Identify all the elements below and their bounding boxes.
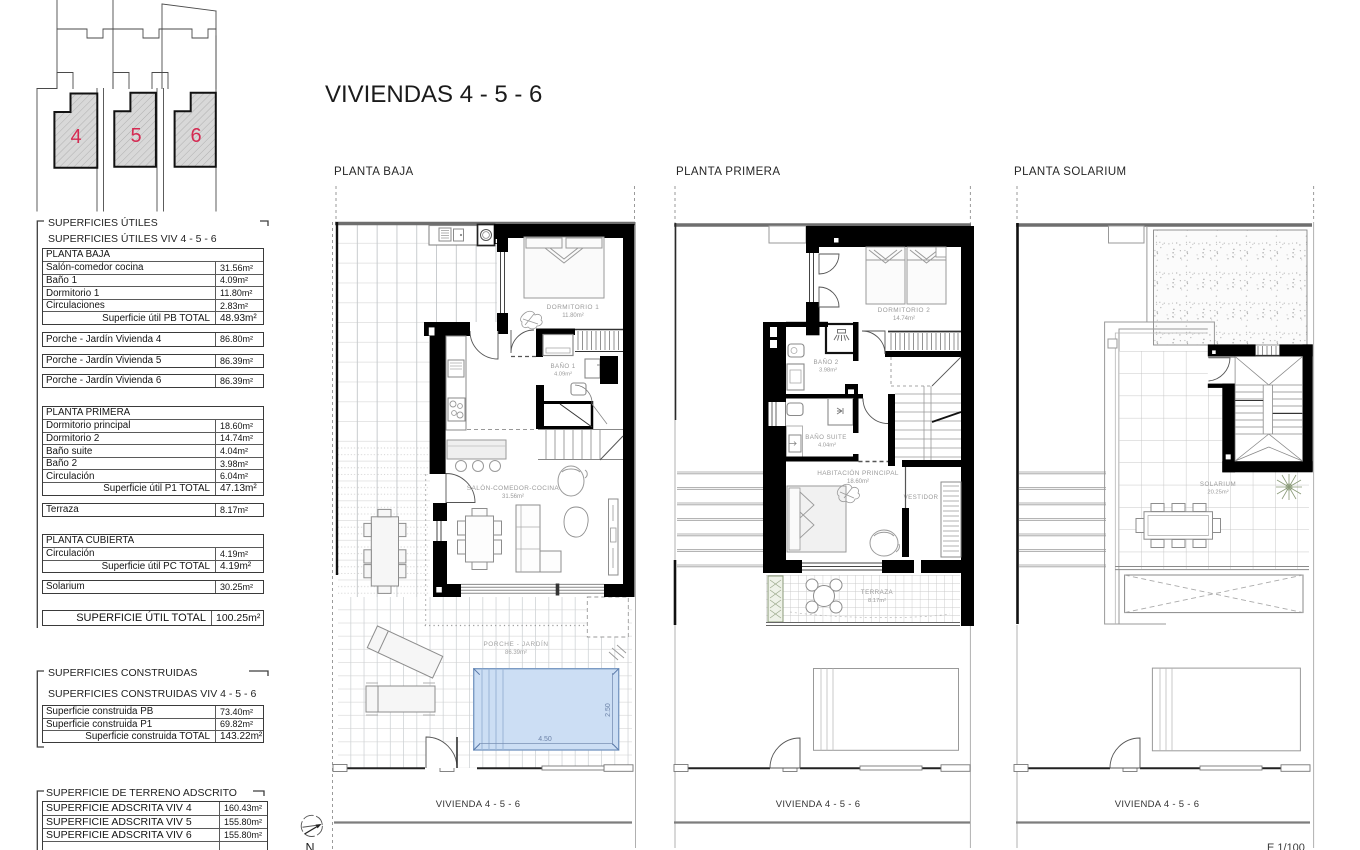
svg-text:VIVIENDA 4 - 5 - 6: VIVIENDA 4 - 5 - 6	[436, 799, 521, 810]
svg-text:3.98m²: 3.98m²	[819, 368, 837, 374]
svg-text:14.74m²: 14.74m²	[893, 316, 915, 322]
svg-text:DORMITORIO 2: DORMITORIO 2	[878, 307, 931, 314]
svg-text:86.39m²: 86.39m²	[505, 650, 527, 656]
svg-text:8.17m²: 8.17m²	[868, 598, 886, 604]
svg-text:18.60m²: 18.60m²	[847, 479, 869, 485]
svg-text:2.50: 2.50	[605, 703, 612, 717]
svg-text:BAÑO 1: BAÑO 1	[550, 363, 575, 370]
svg-text:SALÓN-COMEDOR-COCINA: SALÓN-COMEDOR-COCINA	[467, 483, 559, 492]
svg-text:N: N	[306, 841, 315, 850]
svg-text:VIVIENDA 4 - 5 - 6: VIVIENDA 4 - 5 - 6	[1115, 799, 1200, 810]
svg-text:20.25m²: 20.25m²	[1207, 490, 1228, 496]
svg-text:4.04m²: 4.04m²	[818, 443, 836, 449]
svg-text:E 1/100: E 1/100	[1267, 842, 1305, 850]
svg-text:4.50: 4.50	[538, 736, 552, 743]
svg-text:DORMITORIO 1: DORMITORIO 1	[547, 304, 600, 311]
svg-text:5: 5	[130, 125, 141, 147]
svg-text:TERRAZA: TERRAZA	[861, 589, 894, 596]
svg-text:4: 4	[70, 126, 81, 148]
svg-text:SOLARIUM: SOLARIUM	[1200, 481, 1236, 488]
svg-text:4.09m²: 4.09m²	[554, 372, 572, 378]
svg-text:VIVIENDA 4 - 5 - 6: VIVIENDA 4 - 5 - 6	[776, 799, 861, 810]
svg-text:HABITACIÓN PRINCIPAL: HABITACIÓN PRINCIPAL	[817, 468, 899, 477]
svg-text:VESTIDOR: VESTIDOR	[904, 494, 939, 501]
svg-text:BAÑO 2: BAÑO 2	[813, 359, 838, 366]
svg-text:11.80m²: 11.80m²	[562, 313, 584, 319]
svg-text:PORCHE - JARDÍN: PORCHE - JARDÍN	[483, 639, 548, 648]
svg-text:31.56m²: 31.56m²	[502, 494, 524, 500]
svg-text:BAÑO SUITE: BAÑO SUITE	[805, 434, 846, 441]
svg-text:6: 6	[190, 125, 201, 147]
